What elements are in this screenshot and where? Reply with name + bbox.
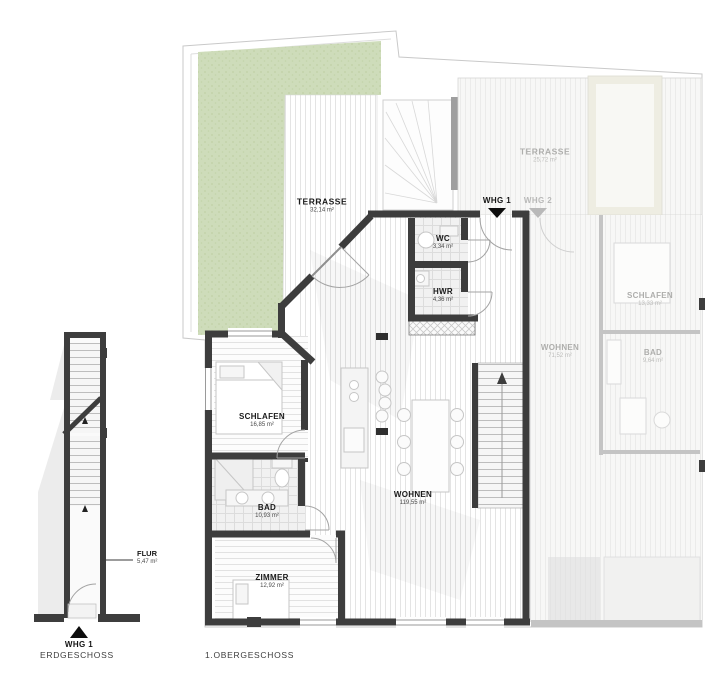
room-label-terrasse-whg2: TERRASSE 25,72 m² <box>520 147 570 166</box>
caption-obergeschoss: 1.OBERGESCHOSS <box>205 650 294 660</box>
floor-plan-page: TERRASSE 32,14 m² WC 3,34 m² HWR 4,36 m²… <box>0 0 723 680</box>
room-label-flur: FLUR 5,47 m² <box>137 549 157 567</box>
shaft-hatch <box>409 320 475 335</box>
eg-entrance-arrow-icon <box>70 626 88 638</box>
room-label-terrasse-whg1: TERRASSE 32,14 m² <box>297 197 347 216</box>
room-label-hwr: HWR 4,36 m² <box>433 287 453 305</box>
terrasse-whg2-area <box>458 76 702 215</box>
caption-erdgeschoss: ERDGESCHOSS <box>40 650 114 660</box>
room-label-schlafen-whg2: SCHLAFEN 13,33 m² <box>627 291 673 309</box>
obergeschoss-drawing <box>183 31 705 628</box>
room-label-wc: WC 3,34 m² <box>433 234 453 252</box>
whg2-entrance-label: WHG 2 <box>524 196 552 205</box>
whg1-entrance-label: WHG 1 <box>483 196 511 205</box>
room-label-bad-whg2: BAD 9,64 m² <box>643 348 663 366</box>
room-label-wohnen-whg2: WOHNEN 71,52 m² <box>541 343 579 361</box>
erdgeschoss-drawing <box>34 332 140 638</box>
room-label-zimmer: ZIMMER 12,92 m² <box>255 573 288 591</box>
interior-stairs <box>472 363 526 508</box>
room-label-wohnen-whg1: WOHNEN 119,55 m² <box>394 490 432 508</box>
room-label-schlafen-whg1: SCHLAFEN 16,85 m² <box>239 412 285 430</box>
floor-plan-drawing <box>0 0 723 680</box>
room-label-bad-whg1: BAD 10,93 m² <box>255 503 279 521</box>
whg2-faded-apartment <box>531 215 702 627</box>
eg-entrance-label: WHG 1 <box>65 640 93 649</box>
